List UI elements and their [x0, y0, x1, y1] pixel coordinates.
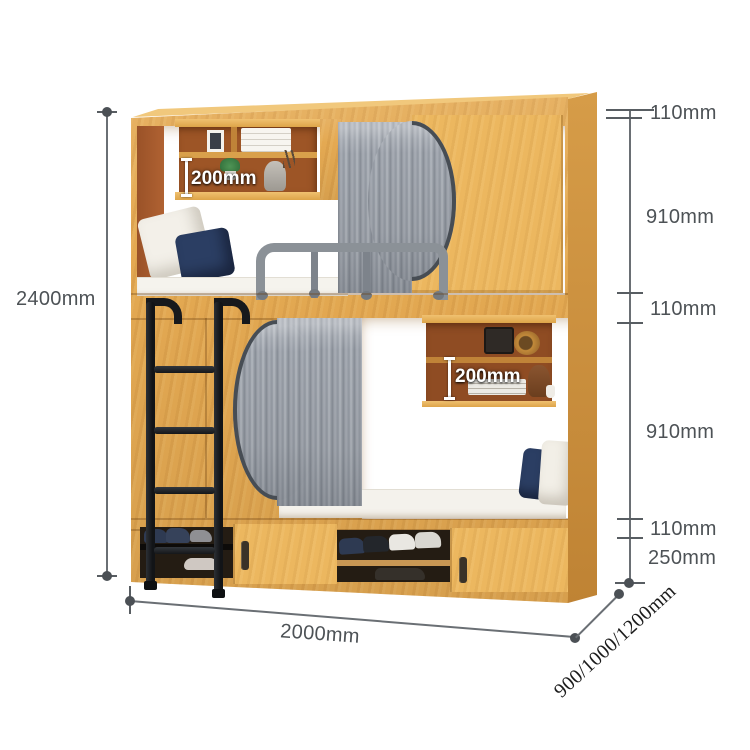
upper-shelf-bracket-cap — [181, 194, 192, 197]
vase-decor — [546, 385, 555, 398]
height-dimension-line — [106, 112, 108, 576]
dimension-dot — [125, 596, 135, 606]
ladder-rail-left — [146, 302, 155, 586]
right-dimension-label-1: 910mm — [646, 206, 714, 229]
lower-wall-shelf — [422, 315, 556, 407]
dimension-dot — [102, 107, 112, 117]
shoe — [389, 533, 416, 550]
camera-decor — [484, 327, 514, 354]
lower-shelf-bracket-cap — [444, 357, 455, 360]
lower-shelf-clearance-label: 200mm — [455, 366, 521, 388]
height-dimension-label: 2400mm — [16, 288, 96, 311]
storage-door-right — [450, 528, 568, 592]
upper-shelf-bracket — [185, 159, 188, 196]
right-dimension-label-4: 110mm — [650, 518, 717, 541]
right-dimension-label-0: 110mm — [650, 102, 717, 125]
ladder-rung — [154, 487, 215, 494]
right-dimension-label-5: 250mm — [648, 547, 716, 570]
shelf-top-board — [175, 119, 321, 127]
upper-shelf-bracket-cap — [181, 158, 192, 161]
ladder-rung — [154, 547, 215, 554]
upper-shelf-clearance-label: 200mm — [191, 168, 257, 190]
book-stack — [241, 128, 291, 152]
dimension-tick — [617, 322, 643, 324]
ladder-foot — [144, 581, 157, 590]
shelf-mid-board — [179, 152, 317, 158]
ladder-rail-right — [214, 302, 223, 594]
divider-seam — [131, 293, 568, 295]
dimension-tick — [617, 292, 643, 294]
compartment-shelf — [337, 560, 450, 566]
door-handle — [459, 557, 467, 583]
dimension-tick — [606, 109, 654, 111]
shoe — [375, 568, 425, 580]
ladder-rung — [154, 427, 215, 434]
dimension-dot — [624, 578, 634, 588]
ladder — [140, 298, 255, 600]
dimension-tick — [617, 518, 643, 520]
shelf-top-board — [422, 315, 556, 323]
cabinet-side-panel — [568, 92, 597, 603]
upper-pillow-navy — [174, 227, 236, 284]
shoe — [363, 535, 390, 552]
pen-holder — [283, 150, 295, 168]
lower-shelf-bracket — [448, 358, 451, 399]
photo-frame — [207, 130, 224, 152]
lower-shelf-bracket-cap — [444, 397, 455, 400]
shelf-divider — [231, 127, 237, 152]
shoe — [338, 537, 365, 555]
right-dimension-label-2: 110mm — [650, 298, 717, 321]
right-dimension-line — [629, 110, 631, 584]
width-dimension-label: 2000mm — [274, 620, 365, 649]
shelf-bottom-board — [422, 401, 556, 407]
shoe-compartment-middle — [337, 530, 450, 582]
dimension-dot — [614, 589, 624, 599]
shelf-bottom-board — [175, 192, 321, 200]
ladder-rung — [154, 366, 215, 373]
shoe — [415, 532, 442, 549]
dimension-dot — [102, 571, 112, 581]
right-dimension-label-3: 910mm — [646, 421, 714, 444]
ladder-foot — [212, 589, 225, 598]
horn-decor — [514, 331, 540, 355]
bunk-bed-dimension-diagram: 200mm 200mm 2400mm 110mm 910mm 110mm 910… — [0, 0, 750, 750]
dimension-tick — [606, 117, 642, 119]
dimension-tick — [617, 537, 643, 539]
guard-rail — [256, 243, 448, 300]
